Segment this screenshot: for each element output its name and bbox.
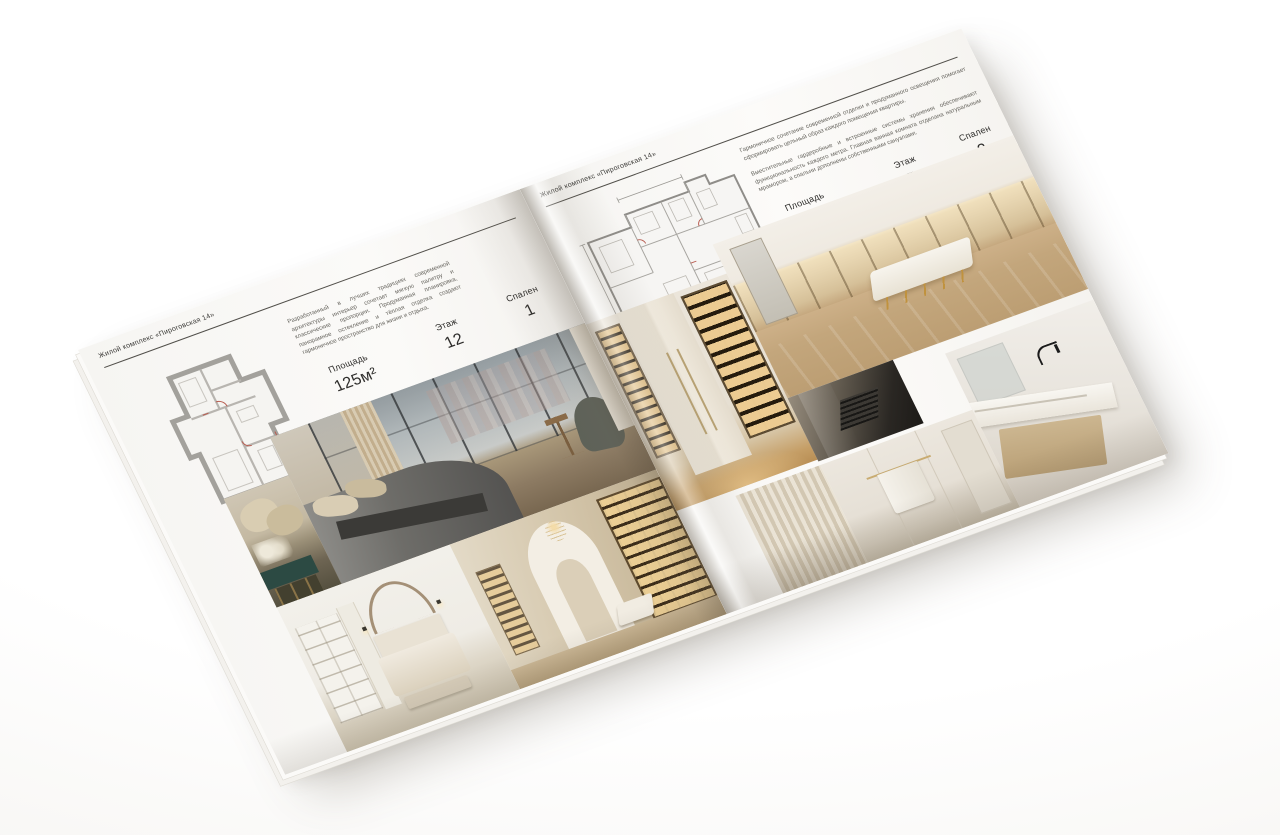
vanity-cabinet-shape (999, 414, 1108, 478)
black-faucet-shape (1034, 340, 1064, 364)
backdrop: Жилой комплекс «Пироговская 14» Р (0, 0, 1280, 835)
cooktop-shape (840, 386, 879, 431)
stat-floor: Этаж 12 (420, 311, 483, 359)
stat-area: Площадь 125м² (312, 347, 394, 401)
brochure-spread: Жилой комплекс «Пироговская 14» Р (78, 29, 1168, 775)
wall-lamp-shape (436, 599, 442, 604)
stat-bedrooms: Спален 1 (493, 280, 560, 329)
towel-shape (877, 461, 936, 514)
